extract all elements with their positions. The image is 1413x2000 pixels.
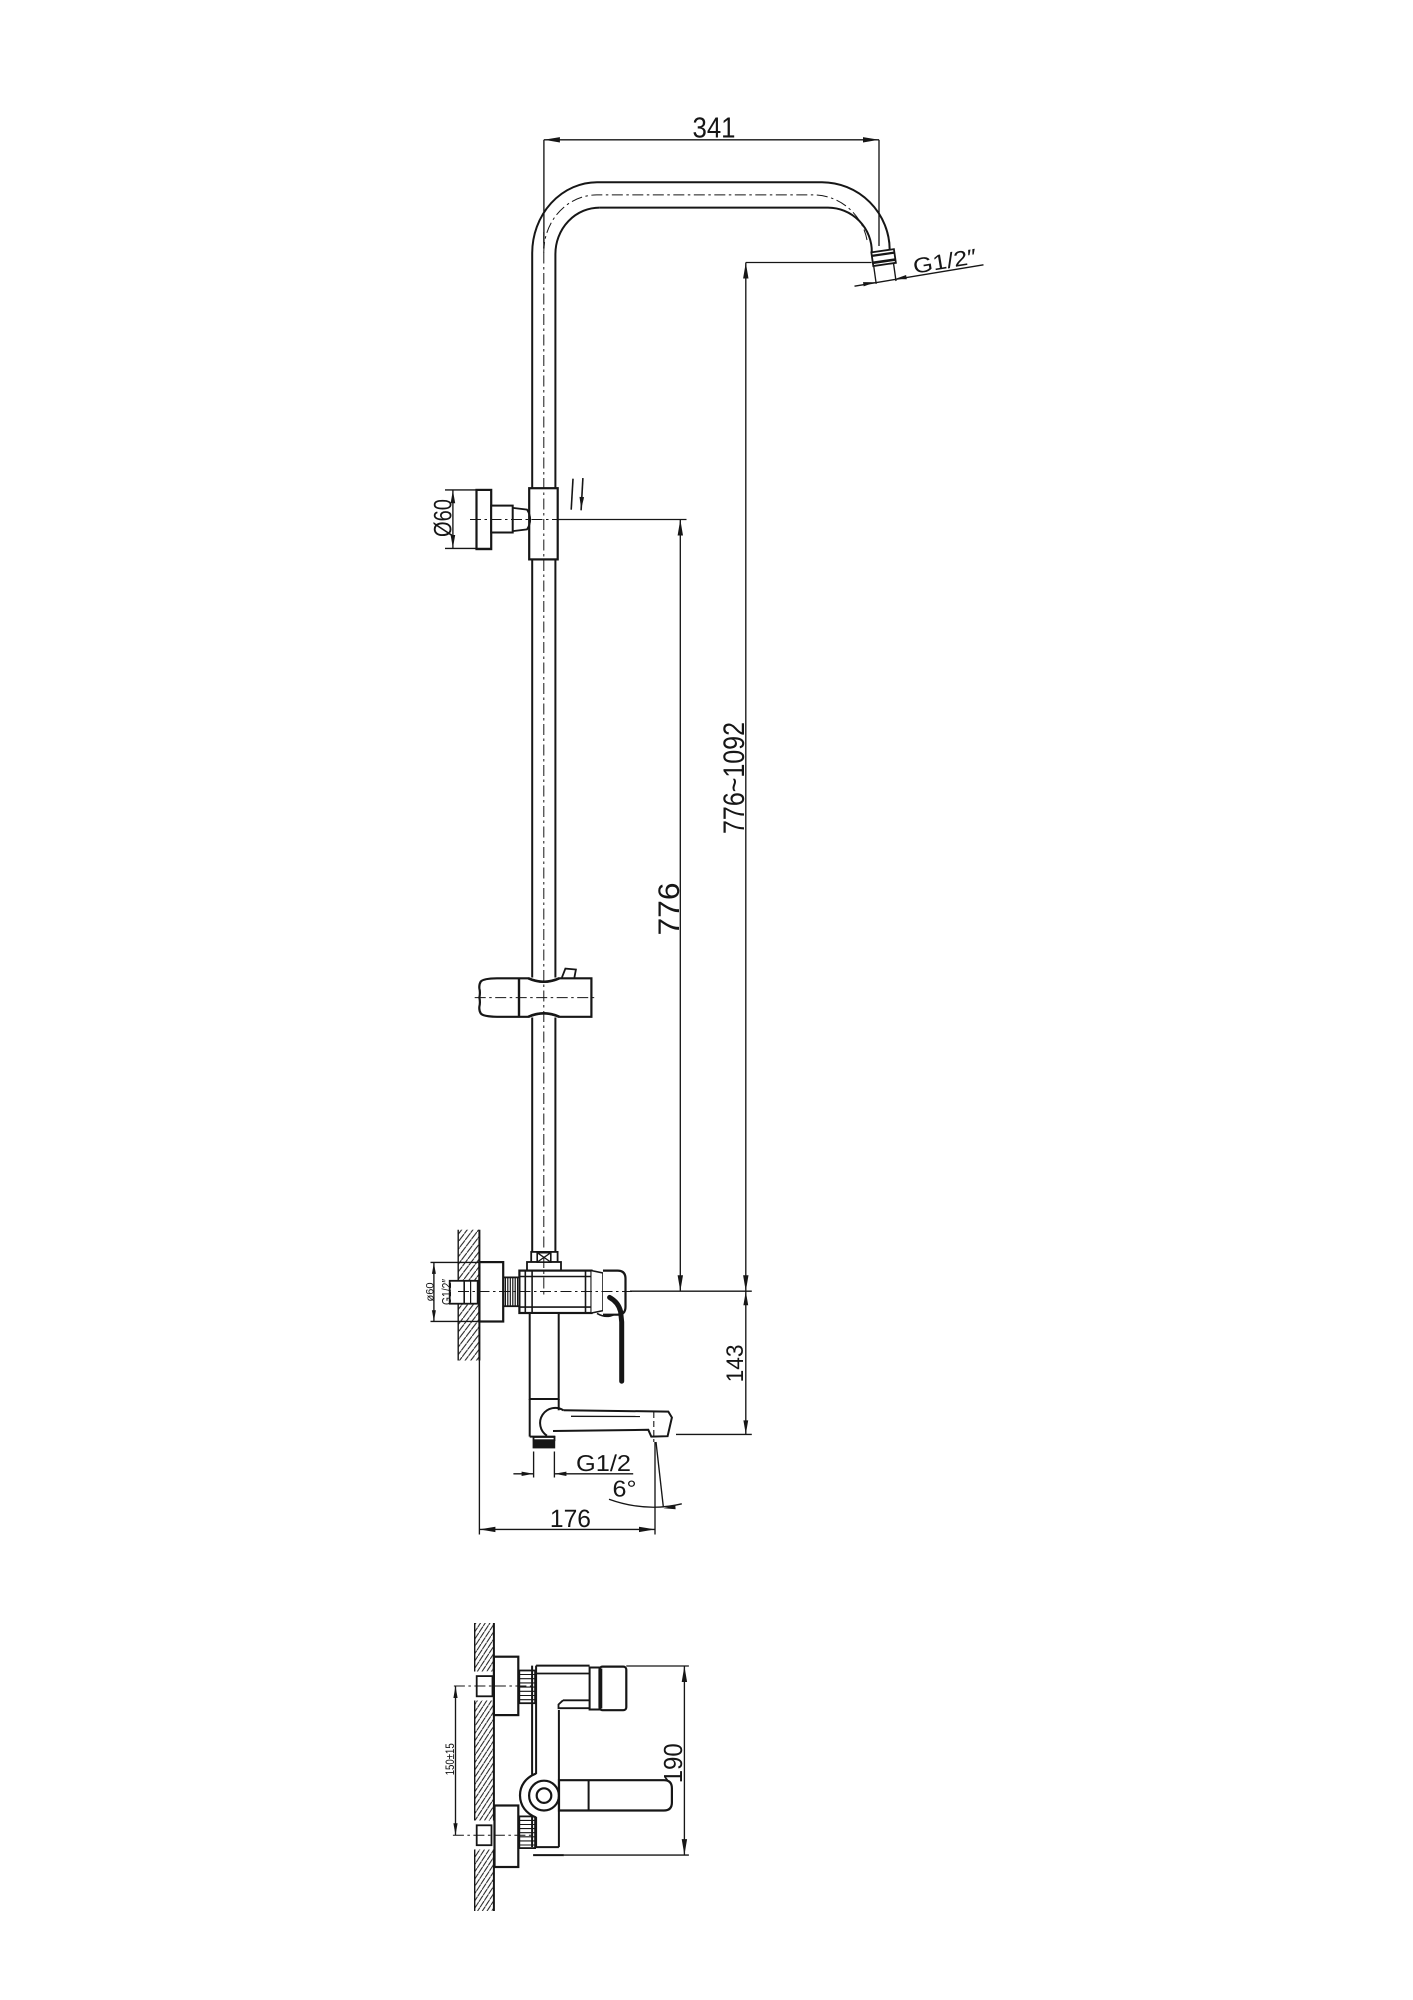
svg-text:776~1092: 776~1092 bbox=[718, 722, 751, 834]
svg-text:341: 341 bbox=[693, 113, 736, 145]
svg-text:Ø60: Ø60 bbox=[430, 499, 458, 537]
svg-text:ø60: ø60 bbox=[425, 1283, 437, 1302]
svg-text:190: 190 bbox=[658, 1743, 688, 1783]
svg-text:143: 143 bbox=[722, 1344, 749, 1382]
svg-text:176: 176 bbox=[550, 1505, 591, 1533]
svg-text:G1/2: G1/2 bbox=[576, 1450, 631, 1476]
svg-text:G1/2″: G1/2″ bbox=[439, 1279, 454, 1305]
svg-text:150±15: 150±15 bbox=[445, 1743, 457, 1775]
svg-text:6°: 6° bbox=[612, 1475, 636, 1501]
svg-text:776: 776 bbox=[653, 883, 686, 936]
